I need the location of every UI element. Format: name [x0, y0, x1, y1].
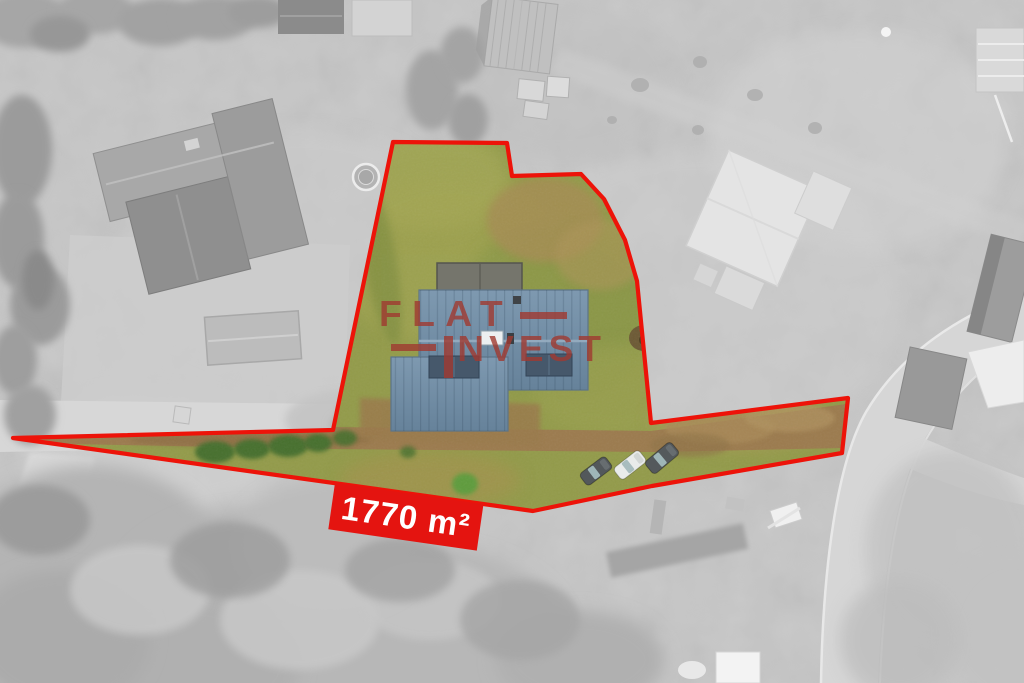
barn-left	[204, 311, 301, 365]
watermark-dash-right	[520, 312, 567, 319]
chimney	[513, 296, 521, 304]
aerial-photo-stage: FLAT INVEST 1770 m²	[0, 0, 1024, 683]
watermark-dash-left	[391, 344, 436, 351]
trampoline	[353, 164, 379, 190]
barn-top	[474, 0, 558, 74]
manhole-pad	[173, 406, 191, 424]
watermark-line2: INVEST	[442, 328, 606, 369]
garden-shed	[437, 263, 522, 291]
aerial-photo: FLAT INVEST 1770 m²	[0, 0, 1024, 683]
white-dot-marker	[881, 27, 891, 37]
